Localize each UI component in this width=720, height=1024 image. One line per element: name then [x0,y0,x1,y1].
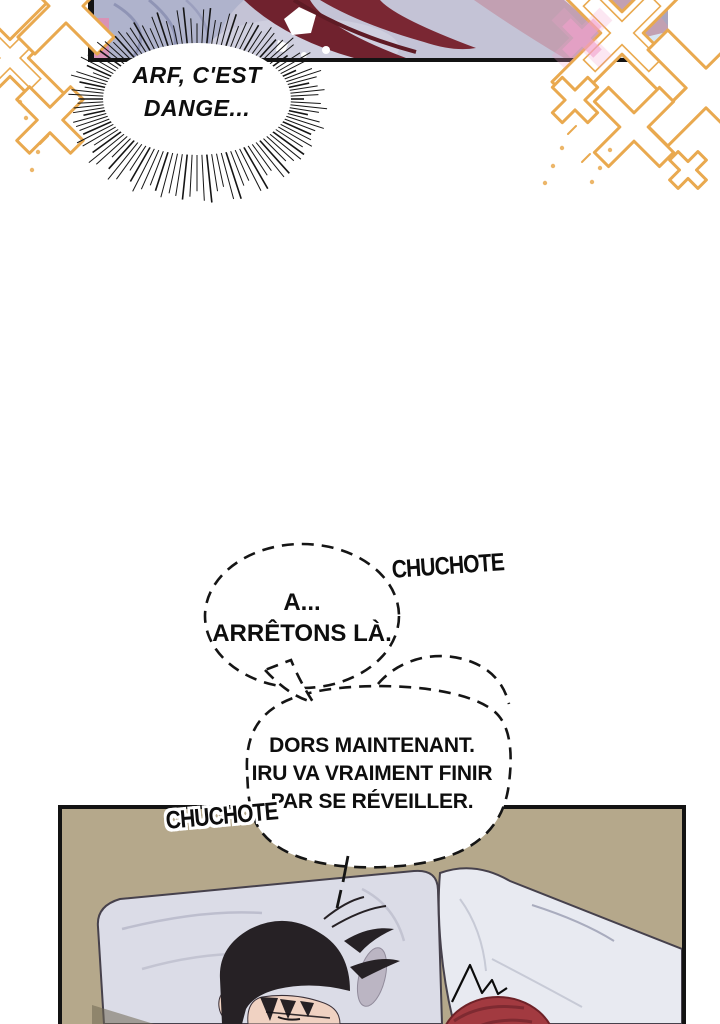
whisper1-line-1: A... [202,587,402,618]
gold-sparkle-dot [598,166,602,170]
gold-sparkle-dot [608,148,612,152]
burst-line-2: DANGE... [99,92,295,125]
burst-bubble-text: ARF, C'EST DANGE... [99,59,295,126]
gold-sparkle-cross [660,142,717,199]
whisper2-line-2: IRU VA VRAIMENT FINIR [237,760,507,788]
gold-sparkle-cross [540,65,611,136]
whisper-bubble-2-text: DORS MAINTENANT. IRU VA VRAIMENT FINIR P… [237,732,507,816]
whisper1-line-2: ARRÊTONS LÀ. [202,618,402,649]
whisper2-line-1: DORS MAINTENANT. [237,732,507,760]
gold-sparkle-dot [560,146,564,150]
bottom-artwork-panel [58,805,686,1024]
burst-line-1: ARF, C'EST [99,59,295,92]
whisper-bubble-2-curl [378,656,509,704]
gold-sparkle-dot [30,168,34,172]
gold-sparkle-cross [0,66,104,173]
gold-sparkle-dot [590,180,594,184]
gold-sparkle-dot [36,150,40,154]
whisper-sfx-top: CHUCHOTE [391,548,505,585]
whisper-bubble-1-tail [265,660,313,702]
gold-sparkle-dot [543,181,547,185]
gold-sparkle-dot [24,116,28,120]
pink-sparkle-corner [94,18,109,58]
bottom-panel-art [62,809,682,1024]
top-panel-art [94,0,668,58]
top-artwork-panel [88,0,668,62]
whisper-bubble-1-text: A... ARRÊTONS LÀ. [202,587,402,649]
comic-page: ARF, C'EST DANGE... CHUCHOTE A... ARRÊTO… [0,0,720,1024]
gold-sparkle-cross [569,62,699,192]
gold-sparkle-dot [551,164,555,168]
gold-sparkle-dot [18,100,22,104]
